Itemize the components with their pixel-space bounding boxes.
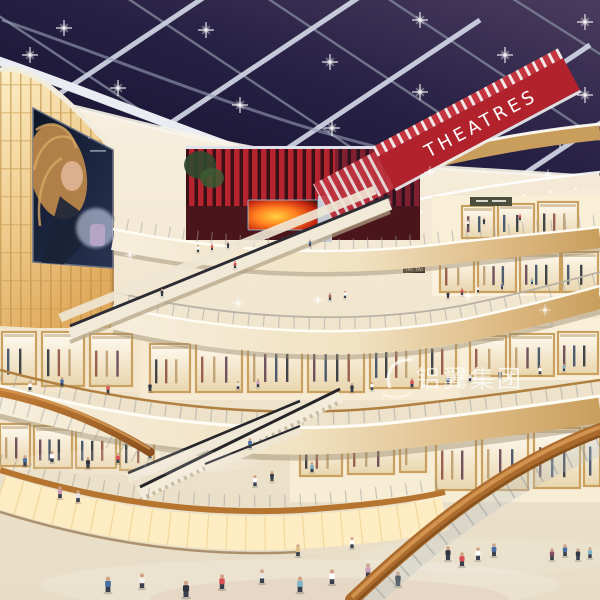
mannequin: [95, 351, 97, 377]
mannequin: [487, 449, 489, 479]
mannequin: [175, 359, 177, 383]
model-face: [61, 161, 83, 191]
shop-window: [498, 204, 534, 238]
mannequin: [225, 357, 227, 383]
mannequin: [583, 345, 585, 366]
mannequin: [15, 437, 17, 458]
mannequin: [116, 351, 118, 377]
mannequin: [264, 354, 266, 382]
mall-atrium-rendering: THEATRES TAI TAI: [0, 0, 600, 600]
mannequin: [492, 266, 494, 285]
mannequin: [543, 214, 545, 232]
mannequin: [526, 347, 528, 368]
mannequin: [503, 215, 505, 232]
mannequin: [545, 265, 547, 285]
mannequin: [535, 265, 537, 285]
mannequin: [165, 359, 167, 383]
mannequin: [553, 214, 555, 232]
mannequin: [483, 266, 485, 285]
mannequin: [155, 359, 157, 383]
mannequin: [525, 265, 527, 285]
mannequin: [47, 349, 49, 376]
mannequin: [457, 268, 459, 286]
mannequin: [68, 349, 70, 376]
shop-window: [150, 344, 190, 392]
mannequin: [516, 215, 518, 232]
perfume-bottle: [90, 224, 105, 246]
mannequin: [441, 451, 443, 480]
mannequin: [19, 349, 21, 375]
mannequin: [538, 347, 540, 368]
mannequin: [567, 265, 569, 285]
mannequin: [451, 451, 453, 480]
mannequin: [502, 266, 504, 285]
scene-canvas: THEATRES TAI TAI: [0, 0, 600, 600]
mannequin: [580, 265, 582, 285]
mannequin: [106, 351, 108, 377]
shop-window: [90, 334, 132, 386]
mannequin: [201, 357, 203, 383]
mannequin: [573, 345, 575, 366]
mannequin: [445, 268, 447, 286]
mannequin: [461, 451, 463, 480]
mannequin: [58, 349, 60, 376]
mannequin: [213, 357, 215, 383]
mannequin: [563, 345, 565, 366]
mannequin: [253, 354, 255, 382]
watermark-text: 铝翼集团: [416, 365, 524, 393]
mannequin: [5, 437, 7, 458]
